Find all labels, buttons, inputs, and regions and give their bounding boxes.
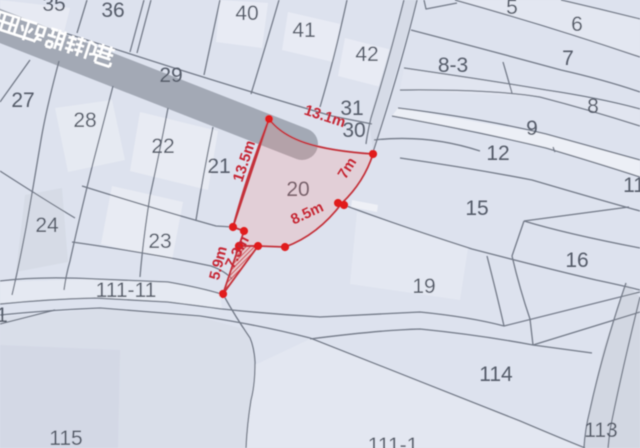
svg-text:19: 19 xyxy=(412,275,435,298)
svg-text:21: 21 xyxy=(207,155,230,178)
svg-text:12: 12 xyxy=(486,142,509,165)
svg-text:5: 5 xyxy=(506,0,518,19)
svg-text:41: 41 xyxy=(292,19,315,42)
svg-text:8-3: 8-3 xyxy=(438,54,468,77)
svg-text:29: 29 xyxy=(159,64,182,87)
svg-text:111-11: 111-11 xyxy=(96,279,157,302)
svg-text:9: 9 xyxy=(526,117,538,140)
svg-text:36: 36 xyxy=(101,0,124,22)
svg-text:22: 22 xyxy=(151,135,174,158)
svg-text:7: 7 xyxy=(562,47,574,70)
svg-text:27: 27 xyxy=(11,89,34,112)
svg-text:11: 11 xyxy=(623,174,640,197)
svg-text:23: 23 xyxy=(148,230,171,253)
svg-text:30: 30 xyxy=(342,119,365,142)
svg-text:15: 15 xyxy=(465,197,488,220)
svg-text:114: 114 xyxy=(479,363,513,386)
svg-text:28: 28 xyxy=(73,109,96,132)
svg-text:113: 113 xyxy=(584,419,617,442)
svg-text:24: 24 xyxy=(35,214,59,237)
svg-text:40: 40 xyxy=(235,2,258,25)
svg-text:16: 16 xyxy=(565,249,588,272)
svg-text:35: 35 xyxy=(42,0,65,16)
svg-text:6: 6 xyxy=(571,13,583,36)
svg-text:1: 1 xyxy=(0,304,8,327)
svg-text:111-1: 111-1 xyxy=(368,434,419,448)
svg-text:8: 8 xyxy=(587,95,599,118)
svg-text:115: 115 xyxy=(49,427,82,448)
svg-text:42: 42 xyxy=(355,43,378,66)
